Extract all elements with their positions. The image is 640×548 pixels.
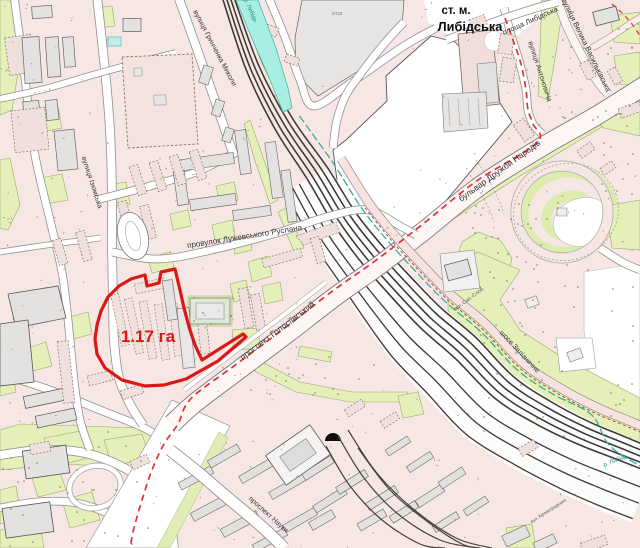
svg-text:ст. м.: ст. м. [441,5,470,17]
svg-text:Либідська: Либідська [438,19,504,34]
svg-text:2П32: 2П32 [332,11,343,16]
svg-text:1.17 га: 1.17 га [121,327,176,346]
